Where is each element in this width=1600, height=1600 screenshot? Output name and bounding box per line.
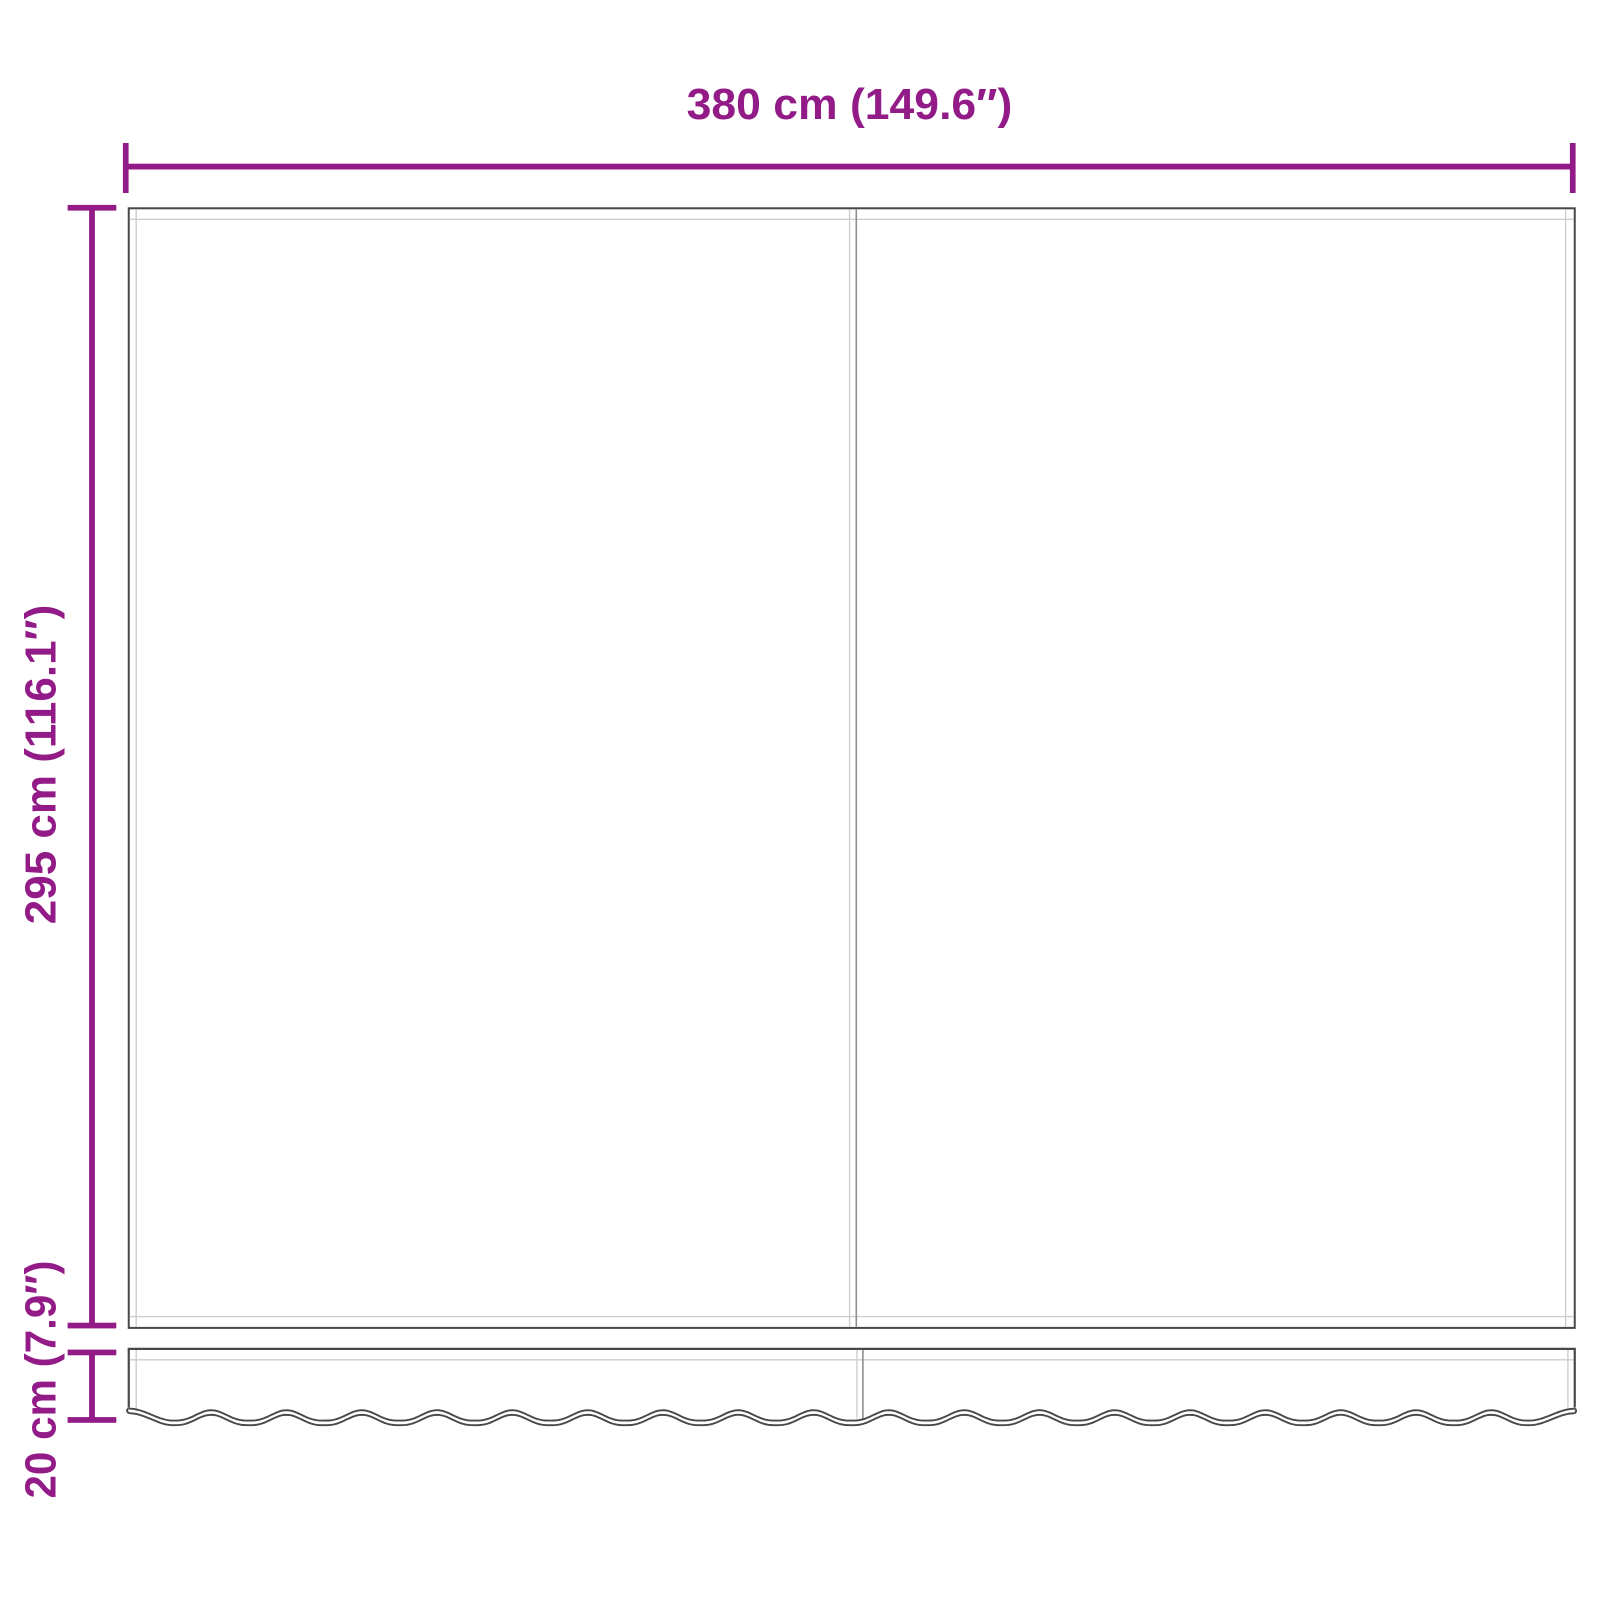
svg-text:295 cm (116.1″): 295 cm (116.1″) [17,605,66,925]
svg-text:380 cm (149.6″): 380 cm (149.6″) [687,80,1013,129]
svg-text:20 cm (7.9″): 20 cm (7.9″) [17,1261,66,1499]
